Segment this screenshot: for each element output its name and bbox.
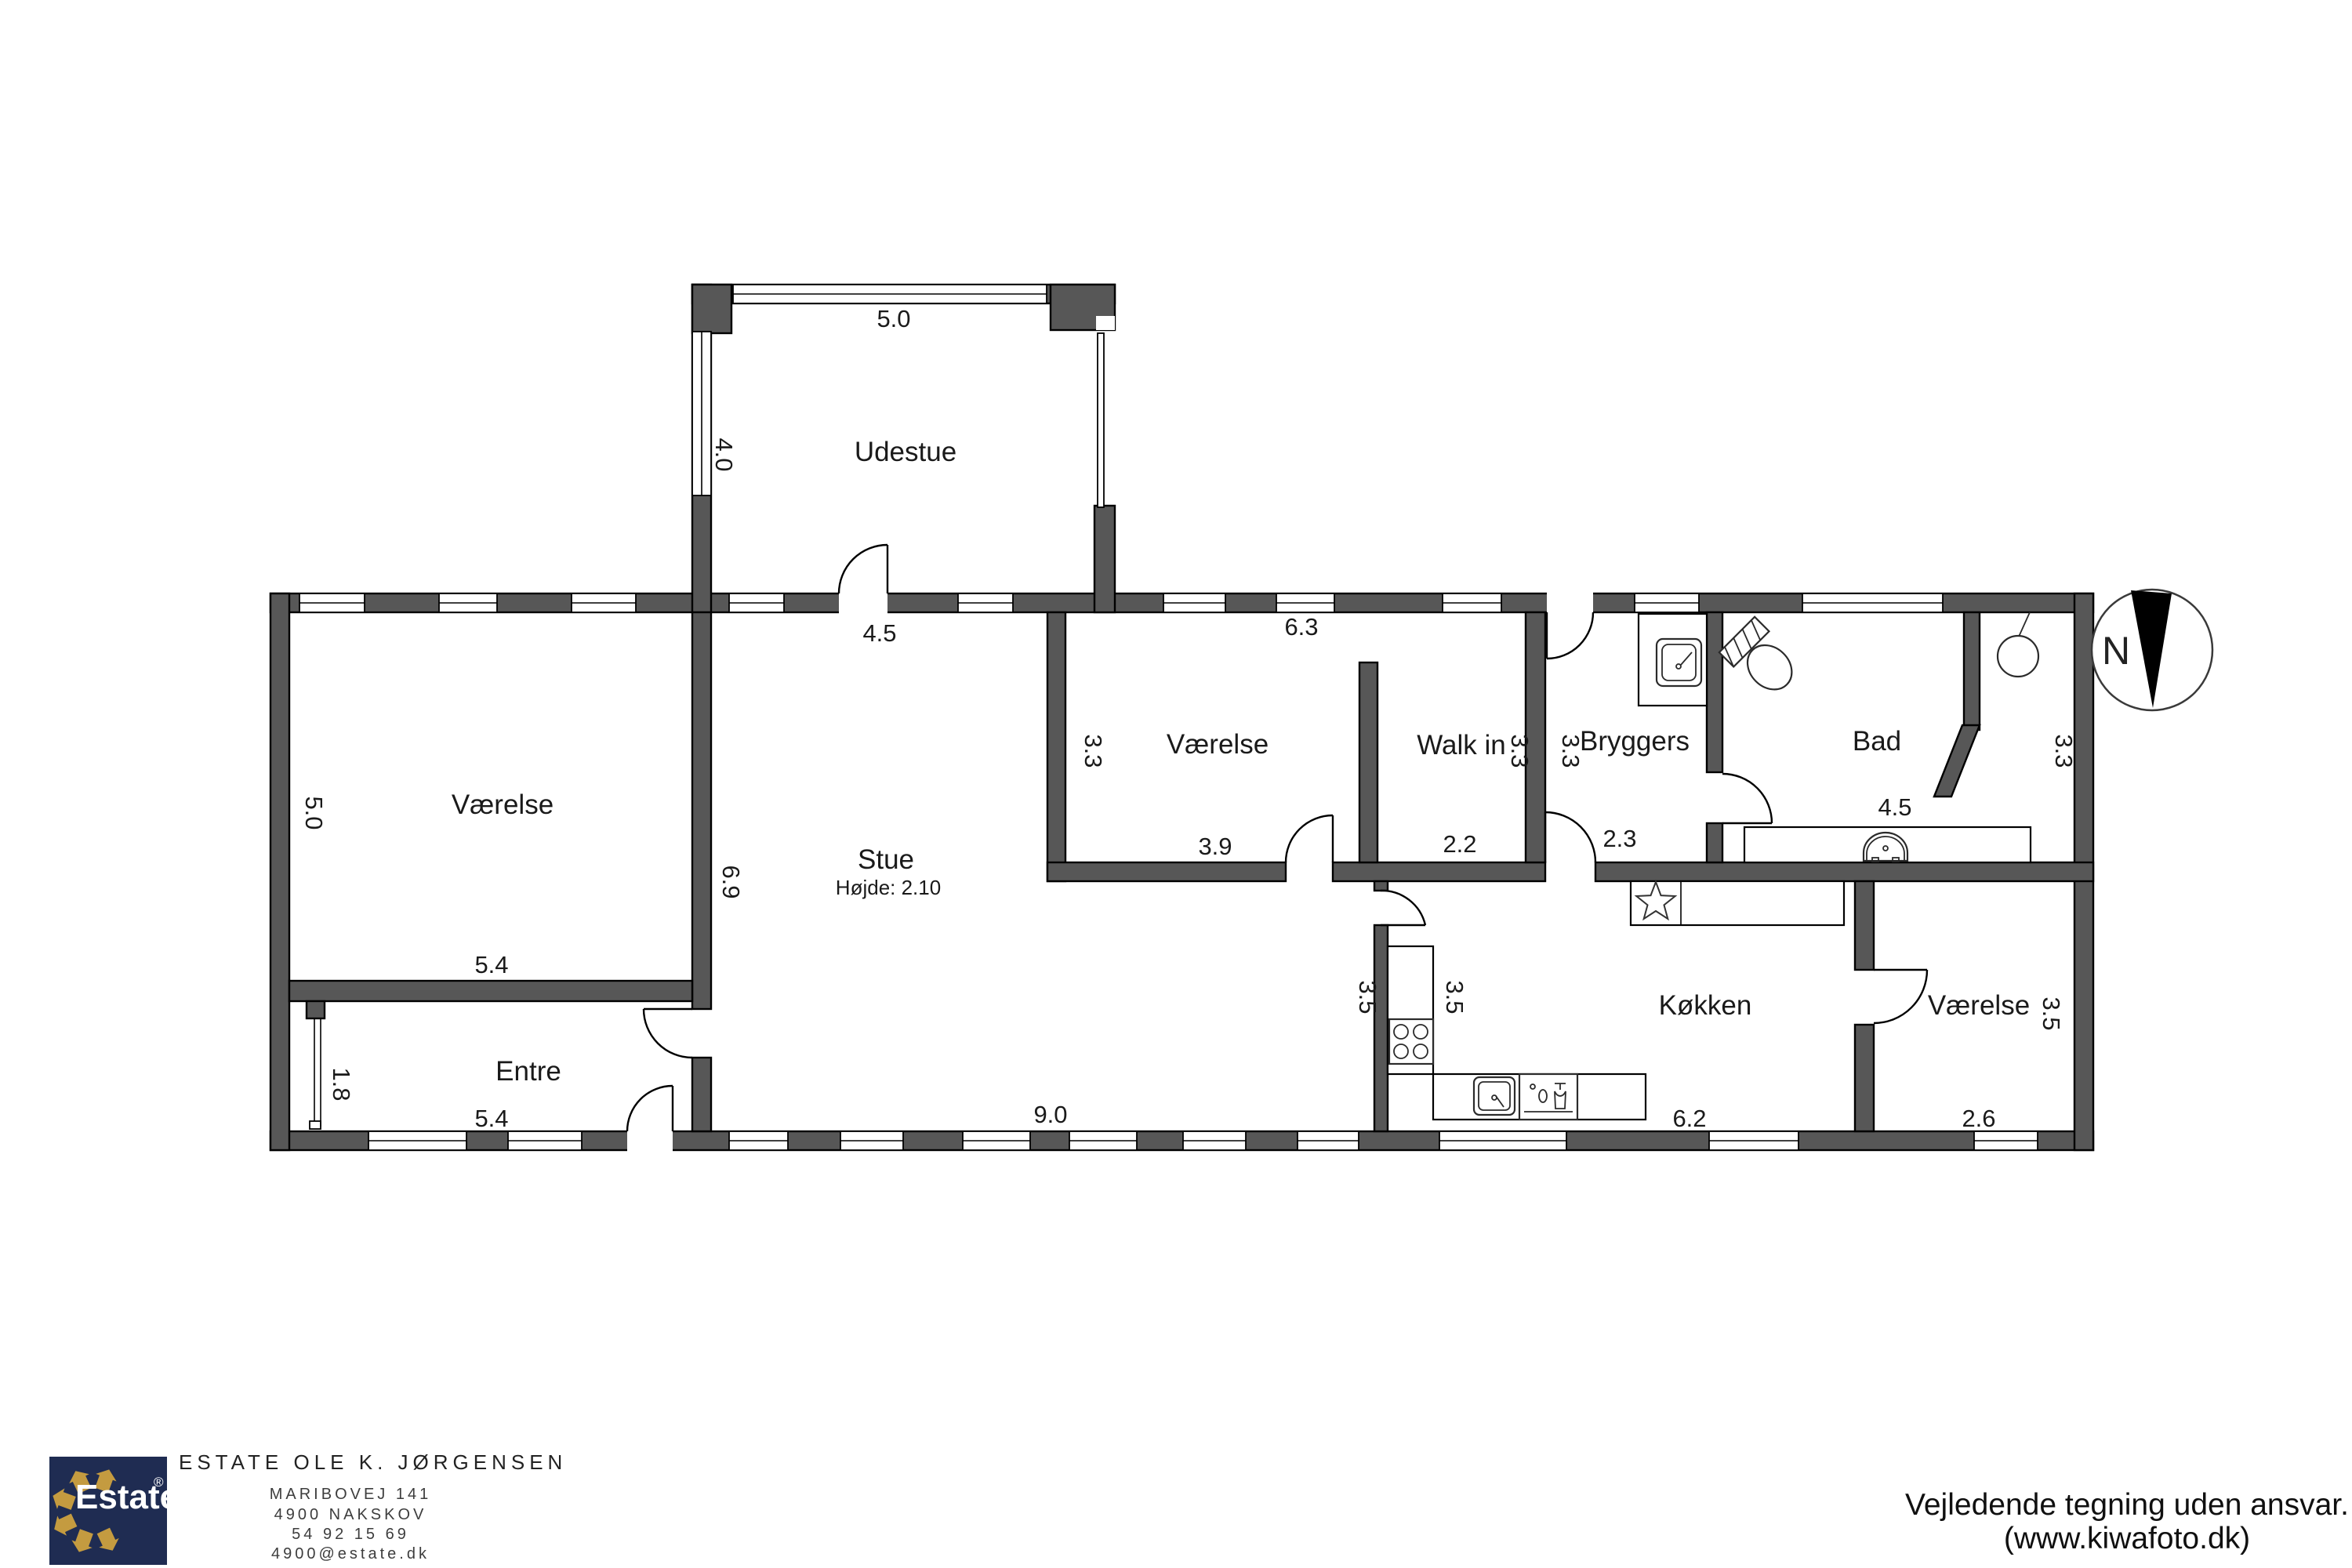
kitchen-sink-icon bbox=[1474, 1077, 1515, 1115]
kitchen-counters bbox=[1388, 946, 1646, 1120]
dim-vaerelse-left-depth: 5.0 bbox=[300, 796, 328, 829]
disclaimer-block: Vejledende tegning uden ansvar. (www.kiw… bbox=[1905, 1488, 2349, 1555]
room-label-vaerelse-mid: Værelse bbox=[1167, 729, 1269, 760]
dim-stue-depth: 6.9 bbox=[717, 865, 745, 898]
floor-plan-drawing: Udestue Værelse Entre Stue Højde: 2.10 V… bbox=[0, 0, 2352, 1568]
dim-vaerelse-mid-width: 3.9 bbox=[1198, 833, 1232, 860]
agency-phone: 54 92 15 69 bbox=[292, 1526, 409, 1543]
bad-vanity bbox=[1744, 827, 2031, 862]
bryggers-entrance-door-arc bbox=[1547, 612, 1593, 659]
compass-north-label: N bbox=[2102, 629, 2130, 673]
dim-vaerelse-left-width: 5.4 bbox=[474, 951, 508, 978]
stue-kokken-door-arc bbox=[1381, 891, 1425, 925]
dim-kokken-depth: 3.5 bbox=[1441, 980, 1468, 1014]
bryggers-counter bbox=[1639, 614, 1707, 706]
pendant-lamp-icon bbox=[1998, 612, 2038, 677]
room-label-stue: Stue bbox=[858, 844, 914, 875]
dim-kokken-width: 6.2 bbox=[1672, 1105, 1706, 1132]
entre-stue-door-arc bbox=[644, 1009, 692, 1058]
bryggers-bad-door-arc bbox=[1722, 774, 1772, 823]
dim-bryggers-depth: 3.3 bbox=[1557, 734, 1584, 768]
dim-udestue-depth: 4.0 bbox=[710, 437, 738, 471]
dim-udestue-door: 4.5 bbox=[862, 619, 896, 647]
dim-vaerelse-mid-depth: 3.3 bbox=[1080, 734, 1107, 768]
dim-entre-window: 1.8 bbox=[328, 1067, 355, 1101]
dim-bad-width: 4.5 bbox=[1878, 793, 1911, 821]
room-label-kokken: Køkken bbox=[1659, 990, 1752, 1021]
dim-vaerelse-right-width: 2.6 bbox=[1962, 1105, 1995, 1132]
dim-walkin-depth: 3.3 bbox=[1506, 734, 1534, 768]
agency-address-street: MARIBOVEJ 141 bbox=[270, 1486, 432, 1503]
dim-walkin-width: 2.2 bbox=[1443, 830, 1476, 858]
appliance-counter bbox=[1631, 881, 1844, 925]
room-note-stue-height: Højde: 2.10 bbox=[836, 876, 941, 899]
udestue-door-arc bbox=[839, 545, 887, 593]
dim-udestue-width: 5.0 bbox=[877, 305, 910, 332]
vaerelse-mid-door-arc bbox=[1286, 815, 1333, 862]
agency-name: ESTATE OLE K. JØRGENSEN bbox=[179, 1450, 567, 1474]
disclaimer-line-2: (www.kiwafoto.dk) bbox=[2004, 1522, 2250, 1555]
agency-contact-block: ESTATE OLE K. JØRGENSEN MARIBOVEJ 141 49… bbox=[179, 1450, 567, 1563]
room-label-bryggers: Bryggers bbox=[1580, 726, 1690, 757]
estate-logo: Estate ® bbox=[49, 1457, 180, 1565]
estate-logo-registered: ® bbox=[154, 1475, 164, 1490]
room-label-bad: Bad bbox=[1853, 726, 1901, 757]
agency-email: 4900@estate.dk bbox=[271, 1545, 430, 1563]
dim-bryggers-width: 2.3 bbox=[1602, 825, 1636, 852]
doors bbox=[627, 545, 1927, 1152]
entre-entrance-door-arc bbox=[627, 1086, 673, 1131]
compass-icon: N bbox=[2092, 590, 2212, 710]
room-label-entre: Entre bbox=[495, 1056, 561, 1087]
agency-address-city: 4900 NAKSKOV bbox=[274, 1506, 427, 1523]
room-label-vaerelse-left: Værelse bbox=[452, 789, 554, 820]
room-label-walkin: Walk in bbox=[1417, 730, 1505, 760]
shower-partition-wall bbox=[1934, 725, 1980, 797]
stove-icon bbox=[1389, 1019, 1433, 1064]
room-label-udestue: Udestue bbox=[855, 437, 956, 467]
floor-plan-page: Udestue Værelse Entre Stue Højde: 2.10 V… bbox=[0, 0, 2352, 1568]
dim-stue-width: 9.0 bbox=[1033, 1101, 1067, 1128]
dim-bad-depth: 3.3 bbox=[2050, 734, 2078, 768]
bryggers-kokken-door-arc bbox=[1545, 812, 1595, 862]
interior-walls bbox=[289, 612, 2093, 1131]
toilet-icon bbox=[1719, 617, 1805, 702]
dishwasher-icon bbox=[1519, 1074, 1577, 1120]
room-label-vaerelse-right: Værelse bbox=[1928, 990, 2030, 1021]
disclaimer-line-1: Vejledende tegning uden ansvar. bbox=[1905, 1488, 2349, 1522]
dim-vaerelse-right-depth: 3.5 bbox=[2038, 996, 2065, 1030]
kokken-vaerelse-door-arc bbox=[1874, 970, 1927, 1023]
dim-entre-width: 5.4 bbox=[474, 1105, 508, 1132]
dim-vaerelse-mid-top: 6.3 bbox=[1284, 613, 1318, 641]
dim-kokken-depth-stue-side: 3.5 bbox=[1354, 980, 1381, 1014]
entre-glass-partition bbox=[310, 1018, 321, 1129]
sink-icon bbox=[1657, 639, 1701, 686]
